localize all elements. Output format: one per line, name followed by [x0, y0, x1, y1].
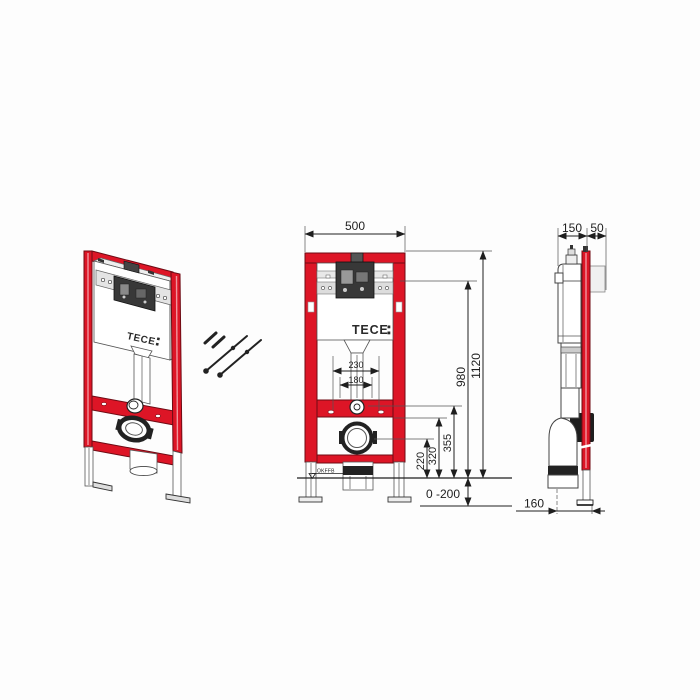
dim-height-cistern-label: 980 — [454, 367, 468, 387]
drawing-svg: TECE — [0, 0, 700, 700]
dim-span-outer-label: 230 — [348, 360, 363, 370]
side-drain-seal — [548, 466, 578, 475]
side-view — [548, 245, 605, 505]
dim-h320-label: 320 — [427, 447, 439, 465]
front-rail-right — [393, 253, 405, 462]
front-foot-left — [299, 497, 322, 502]
side-leg — [583, 470, 590, 503]
side-drain-elbow — [549, 418, 577, 466]
dim-depth-front-label: 50 — [590, 221, 604, 235]
dim-drain-offset-label: 160 — [524, 497, 544, 511]
side-actuator-recess — [590, 266, 605, 292]
dim-h355-label: 355 — [442, 434, 454, 452]
isometric-view: TECE — [84, 251, 190, 503]
dim-h220-label: 220 — [415, 452, 427, 470]
dim-depth-frame-label: 150 — [562, 221, 582, 235]
iso-foot-left — [93, 482, 112, 491]
front-foot-right — [388, 497, 411, 502]
dim-span-inner-label: 180 — [348, 375, 363, 385]
front-rail-left — [305, 253, 317, 462]
iso-leg-right — [173, 451, 181, 498]
front-drain-seal — [343, 466, 373, 475]
dim-width-label: 500 — [345, 219, 365, 233]
side-drain-socket — [548, 475, 578, 488]
side-fill-valve — [566, 255, 577, 264]
technical-drawing: TECE — [0, 0, 700, 700]
front-flush-bend — [344, 340, 370, 353]
front-logo-text: TECE — [352, 323, 389, 337]
dim-foot-range-label: 0 -200 — [426, 487, 460, 501]
front-fill-valve — [351, 253, 363, 263]
accessory-bolts — [203, 333, 261, 378]
dim-height-total-label: 1120 — [469, 353, 483, 379]
